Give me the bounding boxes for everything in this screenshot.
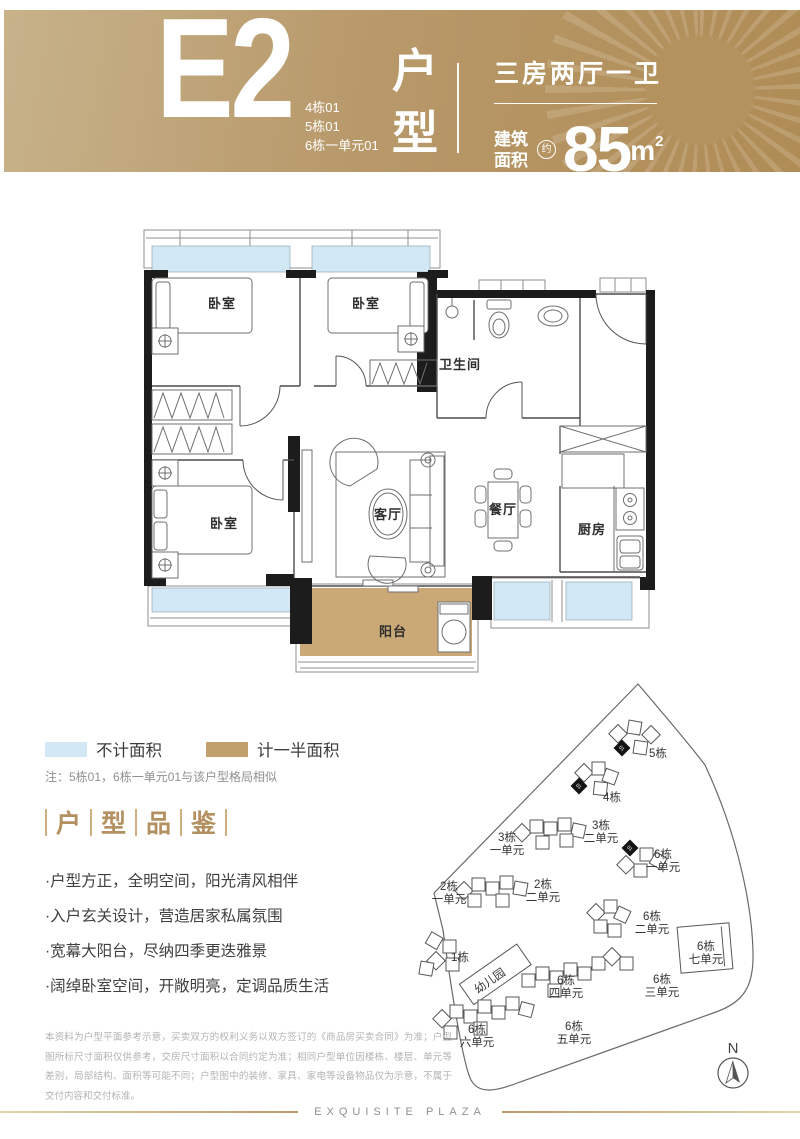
svg-text:N: N bbox=[728, 1040, 739, 1057]
building-unit: 4栋01 bbox=[305, 98, 379, 117]
svg-text:4栋: 4栋 bbox=[603, 790, 621, 804]
area-unit: m2 bbox=[630, 133, 663, 167]
bedroom-label: 卧室 bbox=[352, 296, 380, 311]
feature-item: ·阔绰卧室空间，开敞明亮，定调品质生活 bbox=[45, 969, 329, 1004]
svg-text:3栋二单元: 3栋二单元 bbox=[584, 818, 619, 845]
bathroom-fixtures bbox=[446, 298, 568, 338]
bathroom-label: 卫生间 bbox=[439, 357, 481, 372]
building-cluster-4: 01 bbox=[571, 762, 619, 796]
building-unit-list: 4栋01 5栋01 6栋一单元01 bbox=[305, 98, 379, 155]
area-value: 85 bbox=[563, 121, 630, 172]
feature-list: ·户型方正，全明空间，阳光清风相伴 ·入户玄关设计，营造居家私属氛围 ·宽幕大阳… bbox=[45, 864, 329, 1004]
legend-swatch-half bbox=[206, 742, 248, 757]
site-map: 01 01 01 bbox=[415, 675, 800, 1107]
similarity-note: 注：5栋01，6栋一单元01与该户型格局相似 bbox=[45, 768, 277, 785]
svg-text:6栋五单元: 6栋五单元 bbox=[557, 1019, 592, 1046]
feature-item: ·户型方正，全明空间，阳光清风相伴 bbox=[45, 864, 329, 899]
svg-text:6栋二单元: 6栋二单元 bbox=[635, 909, 670, 936]
header-right-block: 三房两厅一卫 建筑 面积 约 85 m2 bbox=[494, 54, 663, 172]
brand-name: EXQUISITE PLAZA bbox=[298, 1106, 502, 1118]
building-unit: 6栋一单元01 bbox=[305, 136, 379, 155]
legend-label-excluded: 不计面积 bbox=[96, 737, 162, 761]
legend-label-half: 计一半面积 bbox=[257, 737, 340, 761]
dining-label: 餐厅 bbox=[488, 502, 517, 517]
approx-badge: 约 bbox=[537, 140, 556, 159]
disclaimer-text: 本资料为户型平面参考示意，买卖双方的权利义务以双方签订的《商品房买卖合同》为准；… bbox=[45, 1028, 452, 1106]
living-label: 客厅 bbox=[374, 507, 402, 522]
footer: EXQUISITE PLAZA bbox=[0, 1106, 800, 1118]
kitchen-furniture bbox=[560, 426, 646, 572]
area-label: 建筑 面积 bbox=[494, 129, 528, 171]
sliding-door bbox=[388, 586, 418, 592]
header-banner: E2 4栋01 5栋01 6栋一单元01 户 型 三房两厅一卫 建筑 面积 约 … bbox=[4, 10, 800, 172]
building-unit: 5栋01 bbox=[305, 117, 379, 136]
floorplan-poster: E2 4栋01 5栋01 6栋一单元01 户 型 三房两厅一卫 建筑 面积 约 … bbox=[0, 0, 800, 1139]
layout-summary: 三房两厅一卫 bbox=[494, 54, 663, 90]
footer-line-right bbox=[502, 1111, 800, 1113]
building-cluster-6-2 bbox=[587, 900, 631, 937]
kitchen-label: 厨房 bbox=[578, 522, 606, 537]
header-divider bbox=[457, 63, 459, 153]
bedroom-label: 卧室 bbox=[208, 296, 236, 311]
section-title: 户 型 品 鉴 bbox=[45, 804, 227, 840]
feature-item: ·入户玄关设计，营造居家私属氛围 bbox=[45, 899, 329, 934]
svg-text:6栋三单元: 6栋三单元 bbox=[645, 972, 680, 999]
legend: 不计面积 计一半面积 bbox=[45, 737, 340, 761]
floorplan-drawing: 卧室 卧室 卧室 卫生间 客厅 餐厅 厨房 阳台 bbox=[140, 220, 660, 675]
footer-line-left bbox=[0, 1111, 298, 1113]
bedroom-label: 卧室 bbox=[210, 516, 238, 531]
legend-swatch-excluded bbox=[45, 742, 87, 757]
svg-text:5栋: 5栋 bbox=[649, 746, 667, 760]
svg-text:2栋二单元: 2栋二单元 bbox=[526, 877, 561, 904]
balcony-label: 阳台 bbox=[379, 624, 407, 639]
unit-code: E2 bbox=[156, 10, 292, 140]
area-row: 建筑 面积 约 85 m2 bbox=[494, 121, 663, 172]
type-label-vertical: 户 型 bbox=[390, 40, 440, 164]
feature-item: ·宽幕大阳台，尽纳四季更迭雅景 bbox=[45, 934, 329, 969]
compass-icon: N bbox=[718, 1040, 748, 1088]
svg-text:1栋: 1栋 bbox=[451, 950, 469, 964]
header-underline bbox=[494, 103, 657, 104]
svg-text:6栋六单元: 6栋六单元 bbox=[460, 1022, 495, 1049]
